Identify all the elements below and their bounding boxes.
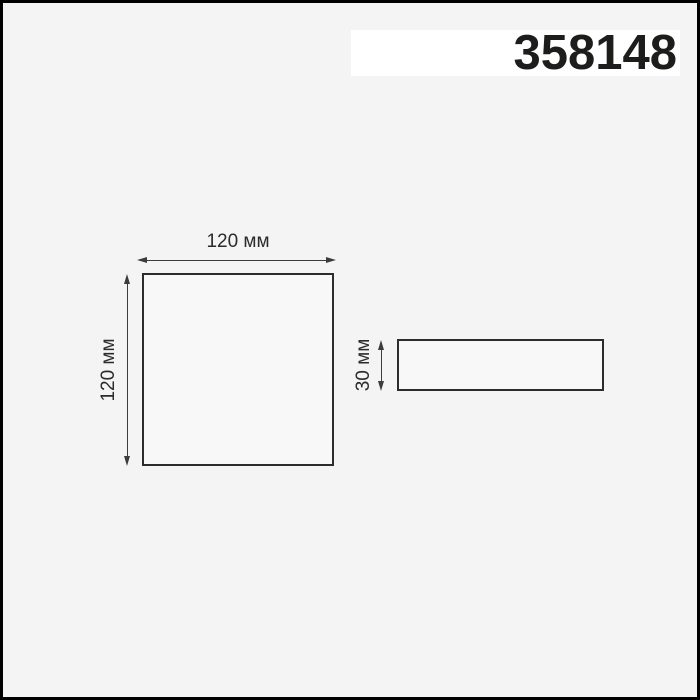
front-view-square	[142, 273, 334, 466]
side-view-rectangle	[397, 339, 604, 391]
article-number: 358148	[513, 30, 680, 76]
front-width-dimension	[137, 256, 336, 265]
front-height-dimension	[123, 274, 132, 466]
arrowhead-down-icon	[124, 456, 130, 466]
front-width-label: 120 мм	[142, 231, 334, 253]
dimension-line	[381, 346, 382, 385]
article-number-box: 358148	[351, 30, 680, 76]
arrowhead-down-icon	[378, 381, 384, 391]
arrowhead-right-icon	[326, 257, 336, 263]
page-frame: 358148 120 мм 120 мм 30 мм	[0, 0, 700, 700]
side-height-label: 30 мм	[353, 339, 375, 392]
front-height-label: 120 мм	[98, 338, 120, 401]
dimension-line	[143, 260, 330, 261]
dimension-line	[127, 280, 128, 460]
side-height-dimension	[377, 340, 386, 391]
